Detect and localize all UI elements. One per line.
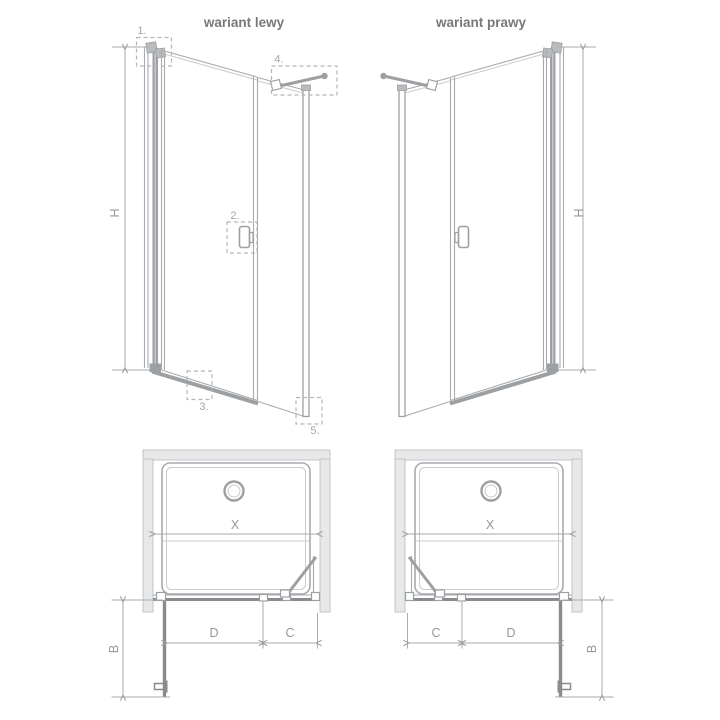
- dim-label-X-left: X: [231, 518, 240, 532]
- dim-label-H-left: H: [108, 208, 122, 217]
- door-handle: [240, 227, 254, 248]
- callout-label-5: 5.: [310, 425, 319, 437]
- support-bar: [271, 73, 328, 91]
- dim-label-B-right: B: [585, 645, 599, 653]
- technical-diagram: wariant lewy wariant prawy H H 1. 2. 3. …: [0, 0, 720, 720]
- open-door-plan: [155, 601, 167, 697]
- wall-profile: [145, 42, 166, 372]
- width-dimensions: [167, 602, 318, 649]
- junction-bracket: [260, 595, 268, 602]
- support-bar-wall-knob: [321, 73, 327, 79]
- top-view-left-variant: [112, 450, 331, 697]
- title-right-variant: wariant prawy: [435, 15, 527, 30]
- support-bar-bracket: [271, 80, 282, 91]
- callout-boxes: [137, 38, 338, 425]
- dim-label-D-left: D: [209, 626, 218, 640]
- fixed-panel: [258, 78, 311, 417]
- dim-label-C-left: C: [285, 626, 294, 640]
- top-view-right-variant: [395, 450, 614, 697]
- dim-label-D-right: D: [506, 626, 515, 640]
- drain: [225, 482, 244, 501]
- dim-label-B-left: B: [107, 645, 121, 653]
- title-left-variant: wariant lewy: [203, 15, 285, 30]
- callout-label-4: 4.: [274, 54, 283, 66]
- callout-label-3: 3.: [199, 401, 208, 413]
- hinge-bracket: [157, 593, 166, 601]
- shower-door-spec-sheet: wariant lewy wariant prawy H H 1. 2. 3. …: [0, 0, 720, 720]
- handle-plan: [155, 684, 165, 690]
- dim-label-X-right: X: [486, 518, 495, 532]
- dim-label-C-right: C: [431, 626, 440, 640]
- support-bar-plan: [288, 557, 317, 594]
- wall-bracket: [312, 593, 320, 601]
- bottom-threshold-rail: [152, 372, 258, 404]
- dim-label-H-right: H: [572, 208, 586, 217]
- front-view-left-variant: [112, 42, 328, 417]
- callout-label-1: 1.: [137, 25, 146, 37]
- callout-label-2: 2.: [230, 210, 239, 222]
- front-view-right-variant: [380, 42, 596, 417]
